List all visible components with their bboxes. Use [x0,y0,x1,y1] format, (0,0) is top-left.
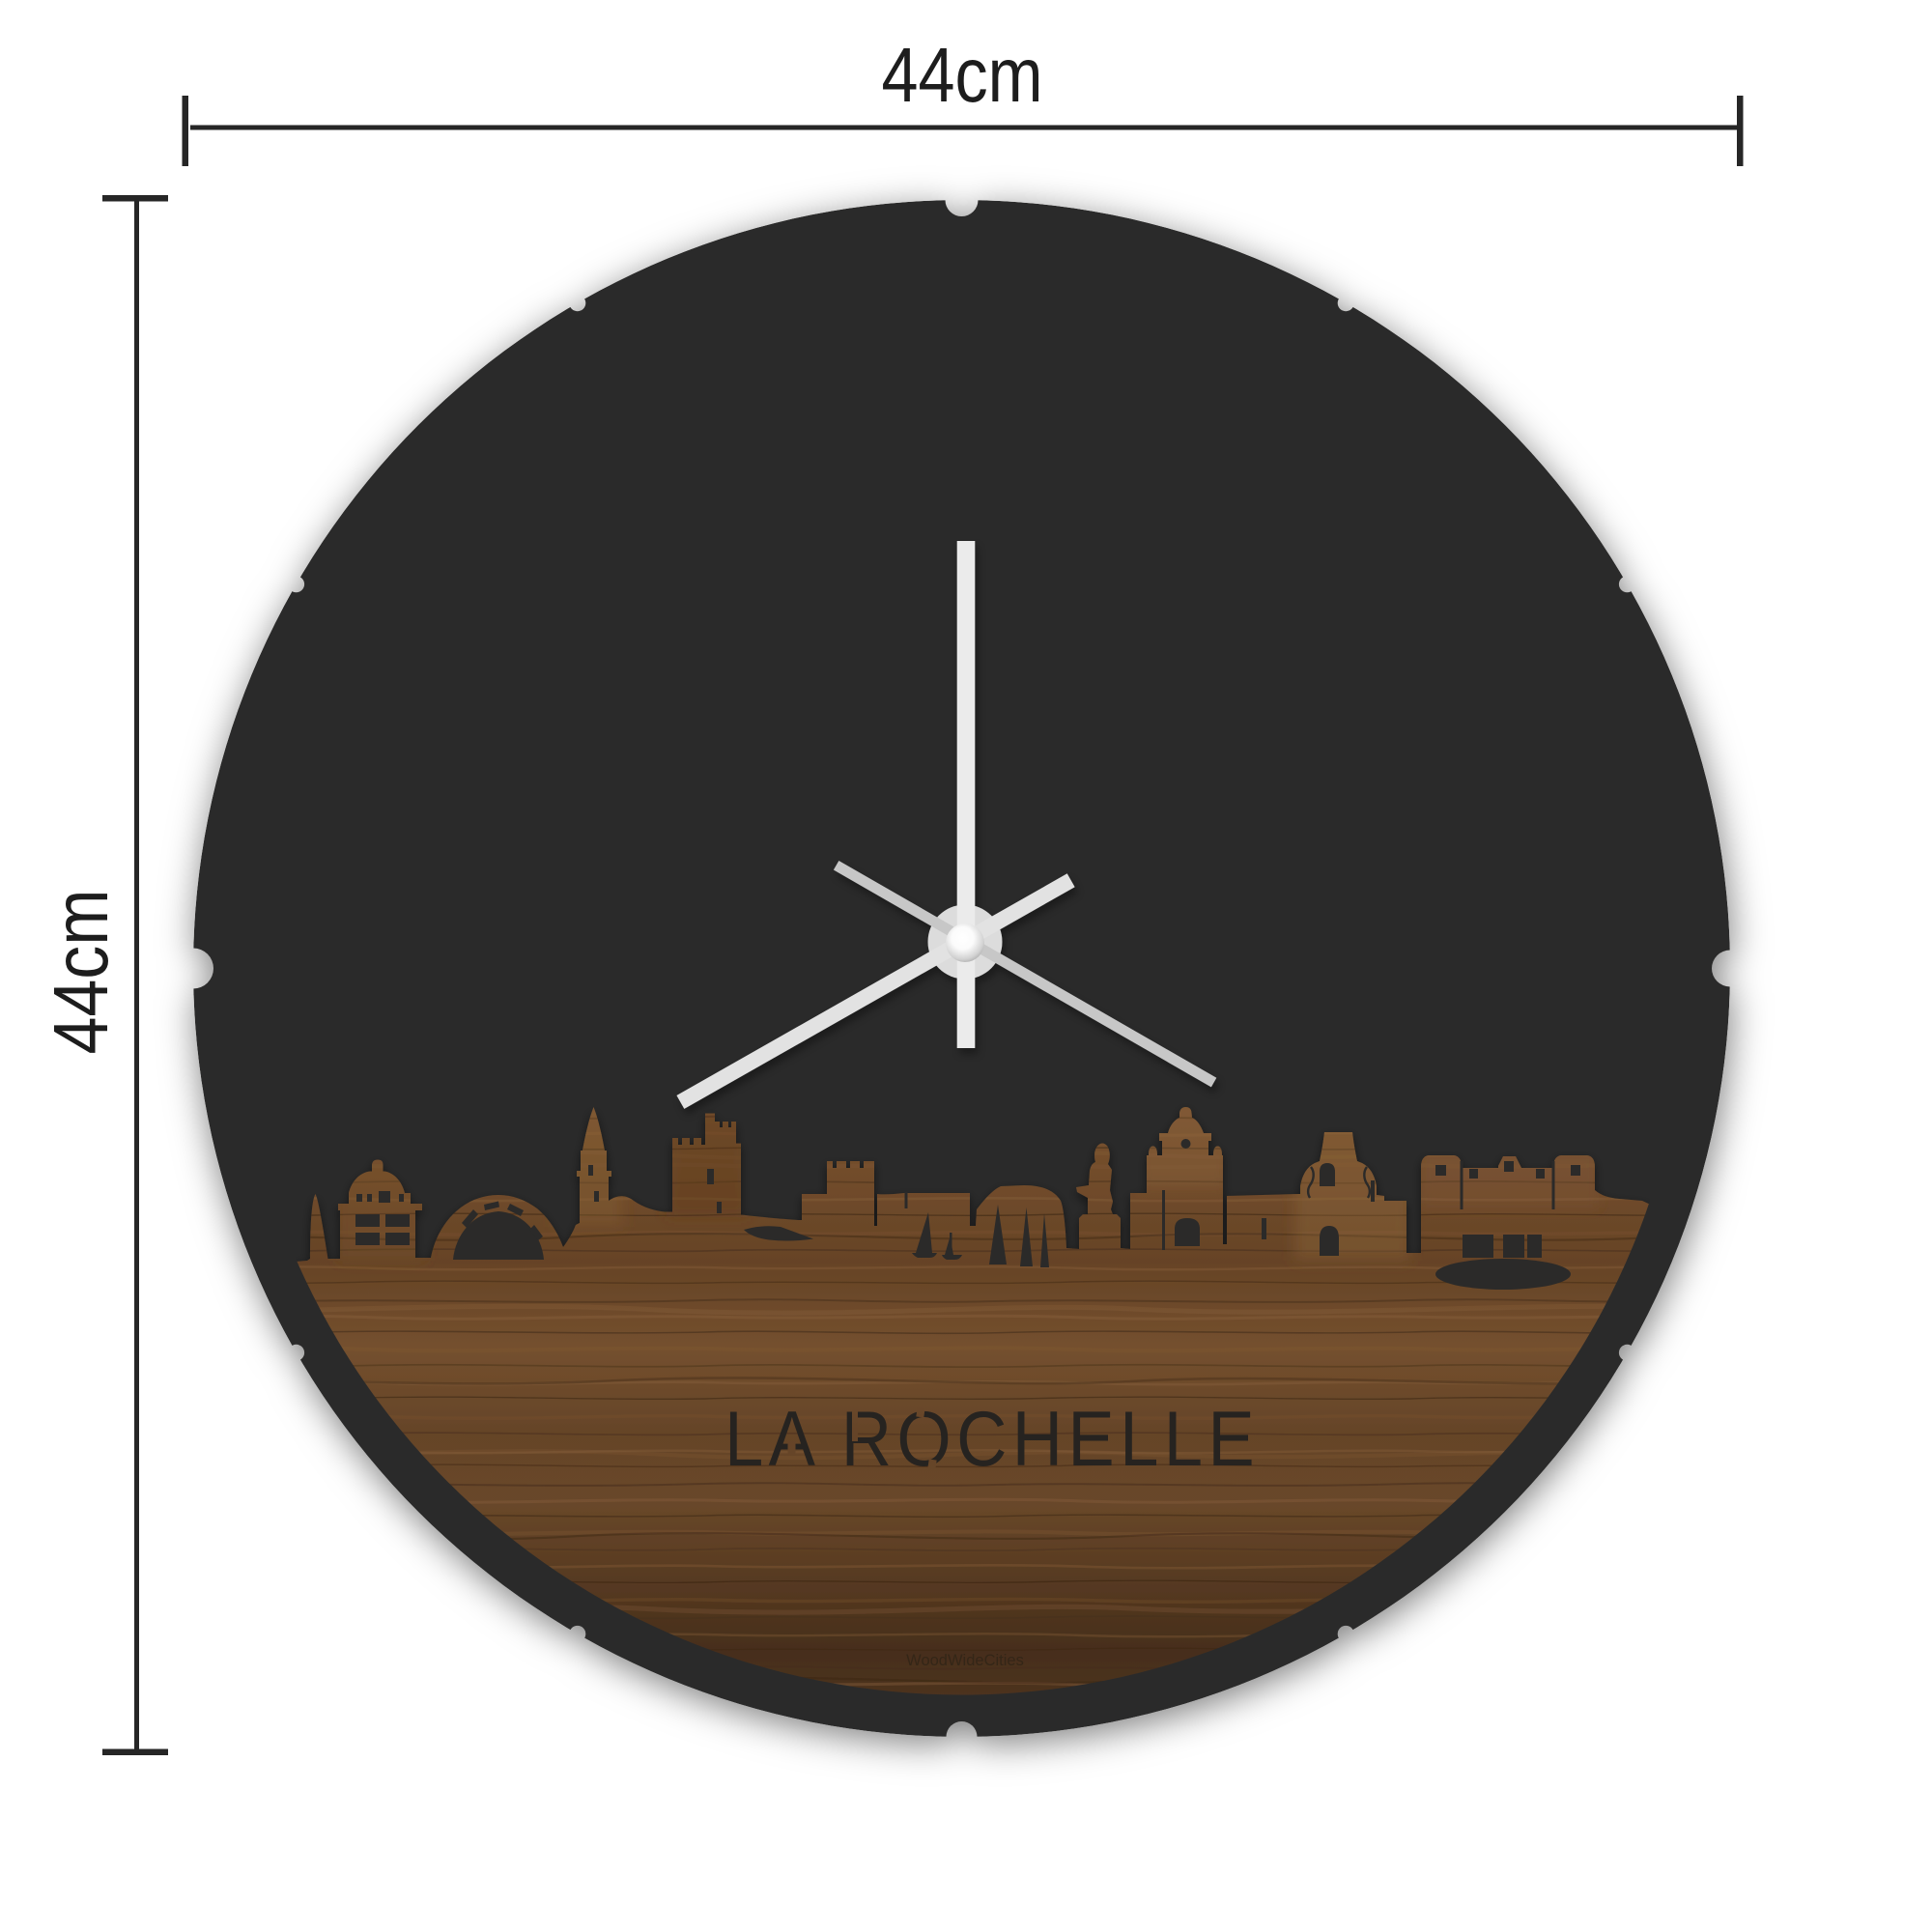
svg-text:44cm: 44cm [882,32,1043,118]
svg-text:WoodWideCities: WoodWideCities [906,1652,1024,1669]
svg-text:LA ROCHELLE: LA ROCHELLE [724,1396,1260,1483]
svg-text:44cm: 44cm [38,890,124,1055]
